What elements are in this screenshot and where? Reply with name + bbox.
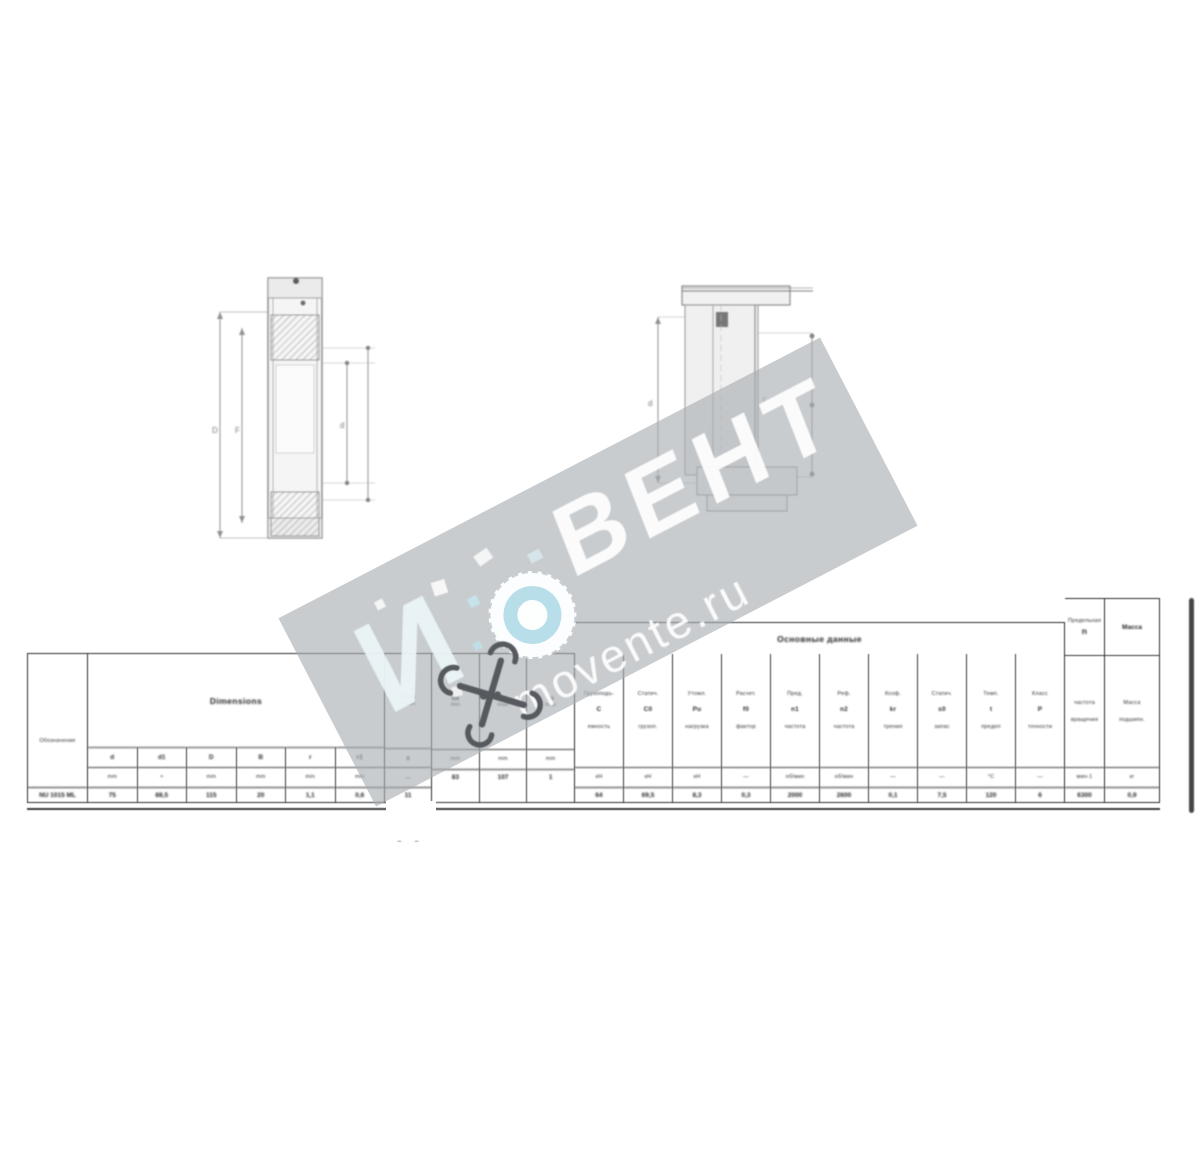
mosaic-tile: [467, 595, 480, 608]
table-column-n1: Пред. n1 частота об/мин 2000: [770, 654, 819, 802]
table-column-d: d mm 75: [88, 747, 137, 802]
designation-column: Обозначение NU 1015 ML: [27, 653, 88, 803]
designation-value: NU 1015 ML: [28, 787, 87, 802]
note-marks: – –: [397, 838, 424, 845]
mosaic-tile: [527, 549, 543, 564]
dim-label-d: d: [340, 421, 344, 430]
dim-label-D: D: [212, 426, 218, 435]
table-column-B: B mm 20: [236, 747, 286, 802]
dim-label-left: d: [648, 399, 652, 408]
table-column-D: D mm 115: [186, 747, 236, 802]
dim-label-F: F: [235, 426, 240, 435]
mosaic-tile: [473, 548, 493, 567]
table-column-t: Темп. t предел °C 120: [966, 654, 1015, 802]
mass-column: Масса Масса подшипн. кг 0,9: [1105, 598, 1160, 803]
table-column-Pu: Утомл. Pu нагрузка кН 8,3: [672, 654, 721, 802]
table-column-d1: d1 ≈ 88,5: [137, 747, 187, 802]
table-column-n2: Реф. n2 частота об/мин 2600: [819, 654, 868, 802]
speed-column: Предельная n частота вращения мин-1 6300: [1065, 598, 1105, 803]
table-column-r: r min 1,1: [285, 747, 335, 802]
scanned-catalog-page: D F d d r D: [0, 0, 1200, 1165]
mosaic-tile: [431, 579, 449, 597]
speed-symbol: n: [1082, 626, 1088, 636]
bearing-cross-section-drawing: D F d: [190, 253, 400, 553]
table-column-f0: Расчет. f0 фактор — 0,3: [721, 654, 770, 802]
note-sticker: – –: [386, 801, 436, 851]
designation-header-cell: Обозначение: [28, 654, 87, 787]
table-bottom-rule: [27, 808, 1160, 810]
designation-header: Обозначение: [31, 738, 84, 745]
adjacent-page-edge: [1189, 598, 1194, 813]
table-column-kr: Коэф. kr трения — 0,1: [868, 654, 917, 802]
table-column-P: Класс P точности — 6: [1015, 654, 1064, 802]
table-column-s0: Статич. s0 запас — 7,5: [917, 654, 966, 802]
